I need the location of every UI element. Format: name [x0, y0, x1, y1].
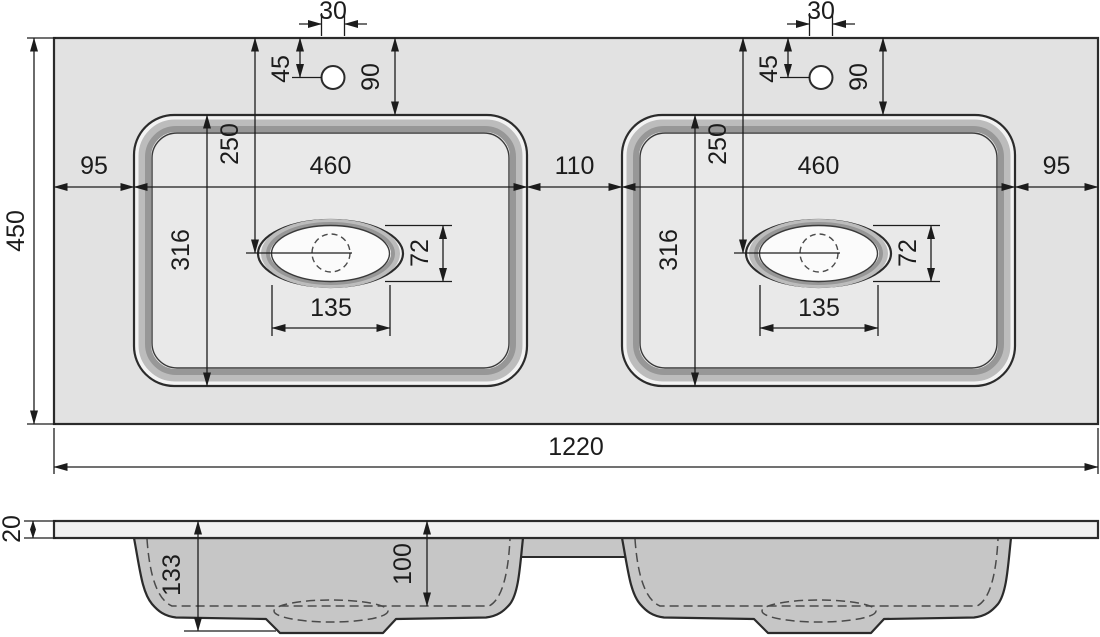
dim-basin-right-width: 460: [798, 152, 840, 180]
dim-basin-left-width: 460: [310, 152, 352, 180]
dim-basin-gap: 110: [555, 152, 595, 180]
dim-drain-offset-right: 250: [704, 123, 732, 165]
dim-basin-left-depth: 316: [167, 229, 195, 271]
basin-left: [134, 66, 527, 386]
dim-margin-left: 95: [80, 152, 108, 180]
slab-section: [54, 521, 1098, 538]
dim-basin-right-depth: 316: [655, 229, 683, 271]
dim-overall-basin-depth: 133: [158, 554, 186, 596]
dim-overall-width: 1220: [548, 433, 604, 461]
bowl-right-section: [622, 538, 1011, 633]
dim-back-margin-right: 90: [845, 63, 873, 91]
technical-drawing: 450 95 460 110 460 95 30 30: [0, 0, 1100, 637]
section-view: 20 133 100: [0, 515, 1098, 633]
dim-back-margin-left: 90: [357, 63, 385, 91]
dim-drain-offset-left: 250: [216, 123, 244, 165]
dim-drain-recess-length-left: 135: [310, 294, 352, 322]
dim-drain-recess-width-left: 72: [406, 239, 434, 267]
dim-overall-depth: 450: [2, 210, 30, 252]
basin-right: [622, 66, 1015, 386]
dim-margin-right: 95: [1043, 152, 1071, 180]
dim-slab-thickness: 20: [0, 515, 26, 543]
bowl-left-section: [134, 538, 523, 633]
drawing-sheet: 450 95 460 110 460 95 30 30: [0, 0, 1100, 637]
dim-faucet-dia-right: 30: [807, 0, 835, 25]
dim-drain-recess-length-right: 135: [798, 294, 840, 322]
dim-faucet-offset-left: 45: [267, 55, 295, 83]
dim-bowl-inner-depth: 100: [389, 543, 417, 585]
dim-faucet-offset-right: 45: [755, 55, 783, 83]
dim-drain-recess-width-right: 72: [894, 239, 922, 267]
plan-view: 450 95 460 110 460 95 30 30: [2, 0, 1098, 474]
faucet-hole-right: [810, 66, 833, 89]
dim-faucet-dia-left: 30: [319, 0, 347, 25]
faucet-hole-left: [322, 66, 345, 89]
